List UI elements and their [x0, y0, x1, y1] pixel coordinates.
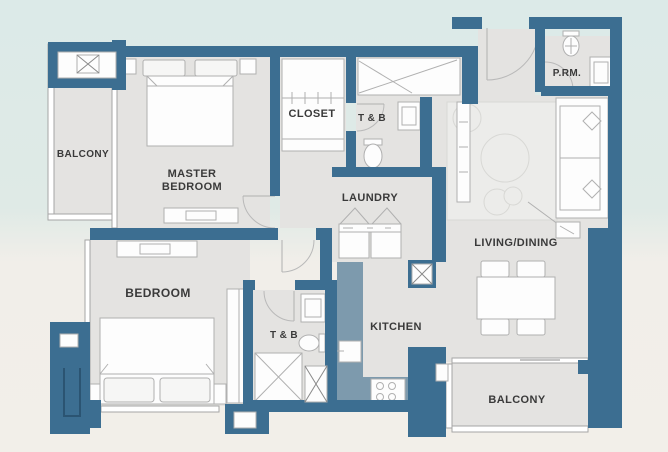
label-tb-lower: T & B: [270, 330, 298, 341]
accent-stool: [504, 187, 522, 205]
wall-segment: [243, 280, 255, 290]
master-bedroom-sliding-window: [112, 88, 117, 228]
wall-segment: [432, 167, 446, 262]
label-balcony-top: BALCONY: [57, 149, 109, 160]
wall-segment: [320, 240, 332, 280]
wall-segment: [535, 29, 545, 92]
wall-segment: [452, 17, 482, 29]
label-laundry: LAUNDRY: [342, 192, 398, 204]
pillow: [160, 378, 210, 402]
dining-chair: [481, 319, 509, 335]
balcony-access-panel: [436, 364, 448, 381]
label-living-dining: LIVING/DINING: [474, 237, 557, 249]
nightstand: [214, 384, 226, 404]
balcony-bottom-railing: [452, 426, 588, 432]
coffee-table-round: [481, 134, 529, 182]
wall-segment: [316, 228, 332, 240]
wall-segment: [610, 29, 622, 95]
label-powder-room: P.RM.: [553, 68, 582, 79]
toilet-tank: [563, 31, 579, 36]
wall-segment: [420, 97, 432, 177]
wall-segment: [588, 228, 622, 428]
hall-cabinet: [457, 102, 470, 202]
dining-chair: [517, 261, 545, 277]
floor-plan-canvas: BALCONY MASTER BEDROOM CLOSET T & B LAUN…: [0, 0, 668, 452]
wall-segment: [529, 17, 622, 29]
wall-segment: [108, 46, 478, 57]
dining-chair: [517, 319, 545, 335]
balcony-top-railing-bottom: [48, 214, 114, 220]
label-tb-upper: T & B: [358, 113, 386, 124]
wall-segment: [462, 46, 478, 104]
wall-segment: [295, 280, 337, 290]
bedroom-window-bottom: [101, 406, 219, 412]
pillow: [143, 60, 185, 76]
dining-table: [477, 277, 555, 319]
label-bedroom: BEDROOM: [125, 286, 190, 300]
label-kitchen: KITCHEN: [370, 321, 422, 333]
label-balcony-bottom: BALCONY: [488, 394, 545, 406]
closet-shelf: [282, 139, 344, 151]
dining-chair: [481, 261, 509, 277]
wall-segment: [578, 360, 590, 374]
wall-segment: [608, 86, 622, 228]
wall-segment: [408, 347, 446, 437]
toilet-tank: [319, 334, 325, 352]
label-closet: CLOSET: [288, 108, 335, 120]
wall-segment: [332, 167, 432, 177]
floor-plan: BALCONY MASTER BEDROOM CLOSET T & B LAUN…: [0, 0, 668, 452]
nightstand: [240, 59, 256, 74]
wall-segment: [90, 228, 278, 240]
label-master-line1: MASTER: [168, 168, 217, 180]
master-dresser: [164, 208, 238, 223]
washer: [339, 232, 369, 258]
bathroom-sink: [398, 102, 420, 130]
wall-segment: [243, 290, 253, 406]
bedroom-dresser: [117, 241, 197, 257]
label-master-line2: BEDROOM: [162, 181, 222, 193]
toilet-bowl: [364, 144, 382, 168]
pillow: [104, 378, 154, 402]
wall-segment: [346, 46, 356, 103]
wall-segment: [270, 46, 280, 196]
toilet-bowl: [299, 335, 319, 351]
closet-wardrobe: [282, 59, 344, 139]
pillow: [195, 60, 237, 76]
ledge-box: [234, 412, 256, 428]
dryer: [371, 232, 401, 258]
ac-unit-box: [60, 334, 78, 347]
